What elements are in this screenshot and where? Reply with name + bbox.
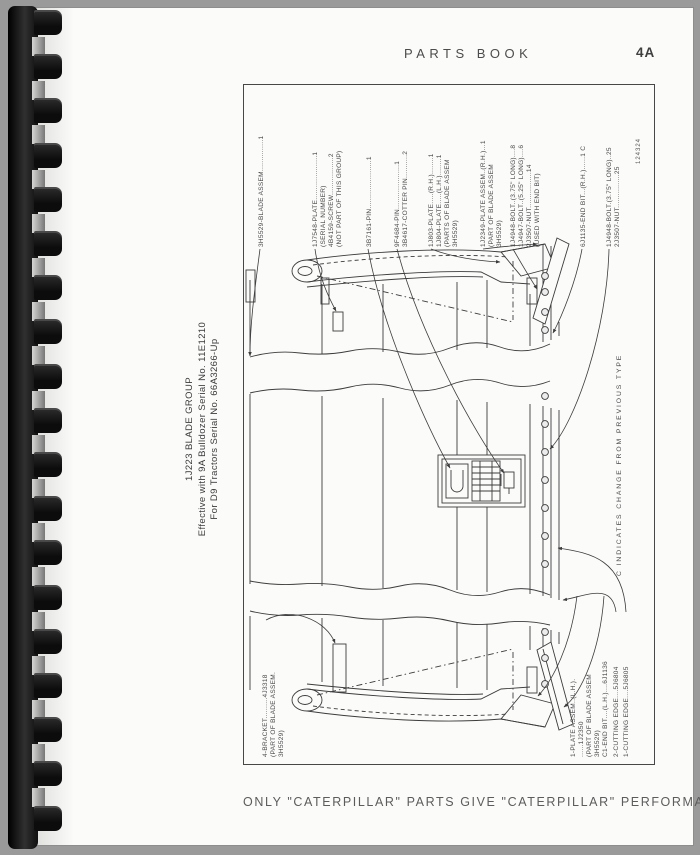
binding-tooth: [34, 10, 62, 35]
binding-tooth: [34, 629, 62, 654]
binding-gap: [32, 523, 45, 542]
binding-tooth: [34, 408, 62, 433]
binding-gap: [32, 612, 45, 631]
part-label: 1J803-PLATE.....(R.H.)........11J804-PLA…: [428, 153, 460, 247]
part-label: 1-PLATE ASSEM..(L.H.).......1J2350(PART …: [570, 674, 602, 757]
binding-tooth: [34, 673, 62, 698]
binding: [8, 6, 66, 849]
part-label: 2-CUTTING EDGE....5J6804: [613, 666, 621, 757]
binding-gap: [32, 125, 45, 144]
binding-gap: [32, 346, 45, 365]
binding-gap: [32, 391, 45, 410]
figure-title-line: 1J223 BLADE GROUP: [184, 294, 197, 564]
part-label: 1J4948-BOLT.(3.75" LONG)..252J3507-NUT..…: [606, 147, 622, 247]
binding-tooth: [34, 98, 62, 123]
binding-gap: [32, 37, 45, 56]
part-label: 6J1135-END BIT...(R.H.)......1 C: [580, 146, 588, 247]
part-label: 1J2349-PLATE ASSEM..(R.H.)...1(PART OF B…: [480, 140, 504, 247]
binding-tooth: [34, 187, 62, 212]
binding-gap: [32, 81, 45, 100]
change-note: C INDICATES CHANGE FROM PREVIOUS TYPE: [616, 354, 623, 576]
binding-tooth: [34, 319, 62, 344]
binding-gap: [32, 258, 45, 277]
binding-tooth: [34, 143, 62, 168]
binding-gap: [32, 700, 45, 719]
figure-title-line: For D9 Tractors Serial No. 66A3266-Up: [209, 294, 222, 564]
binding-gap: [32, 788, 45, 807]
part-label: 9F4684-PIN.....................13B4617-C…: [394, 151, 410, 247]
part-label: 3B7161-PIN.......................1: [366, 156, 374, 247]
binding-gap: [32, 302, 45, 321]
binding-tooth: [34, 364, 62, 389]
binding-tooth: [34, 231, 62, 256]
binding-gap: [32, 170, 45, 189]
page-number: 4A: [636, 45, 655, 60]
binding-tooth: [34, 585, 62, 610]
binding-tooth: [34, 806, 62, 831]
binding-gap: [32, 214, 45, 233]
part-label: C1-END BIT....(L.H.)....6J1136: [602, 661, 610, 757]
figure-title-block: 1J223 BLADE GROUP Effective with 9A Bull…: [184, 294, 222, 564]
binding-gap: [32, 567, 45, 586]
footer-slogan: ONLY "CATERPILLAR" PARTS GIVE "CATERPILL…: [243, 795, 653, 809]
binding-tooth: [34, 275, 62, 300]
figure-number: 124324: [636, 138, 642, 164]
part-label: 1J7548-PLATE.....................1(SERIA…: [312, 150, 344, 247]
figure-title-line: Effective with 9A Bulldozer Serial No. 1…: [197, 294, 210, 564]
binding-gap: [32, 744, 45, 763]
binding-gap: [32, 435, 45, 454]
part-label: 1-CUTTING EDGE....5J6805: [623, 666, 631, 757]
binding-tooth: [34, 761, 62, 786]
scanned-parts-book-page: { "header": { "title": "PARTS BOOK", "pa…: [0, 0, 700, 855]
header-title: PARTS BOOK: [404, 46, 532, 61]
binding-tooth: [34, 717, 62, 742]
part-label: 1J4948-BOLT..(3.75" LONG)....81J4947-BOL…: [510, 145, 542, 247]
binding-tooth: [34, 496, 62, 521]
binding-tooth: [34, 54, 62, 79]
part-label: 4-BRACKET..........4J3318(PART OF BLADE …: [262, 672, 286, 757]
binding-tooth: [34, 540, 62, 565]
binding-tooth: [34, 452, 62, 477]
binding-gap: [32, 656, 45, 675]
binding-gap: [32, 479, 45, 498]
part-label: 3H5529-BLADE ASSEM...............1: [258, 136, 266, 247]
